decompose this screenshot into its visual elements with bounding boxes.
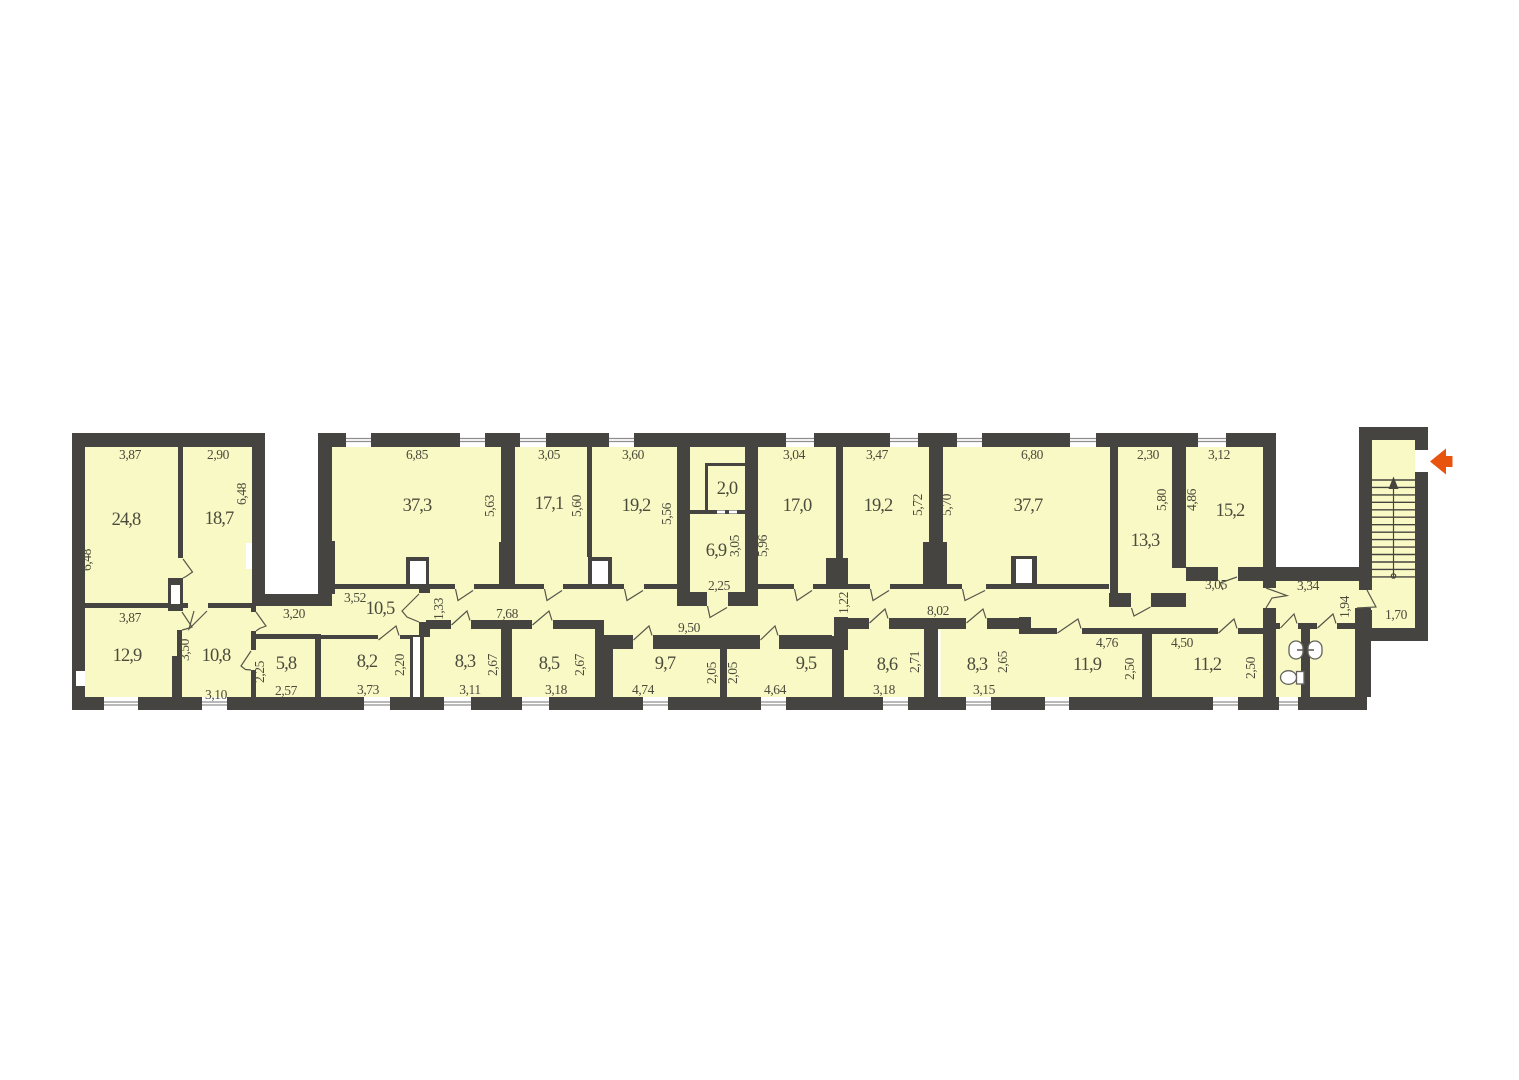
svg-text:2,25: 2,25	[252, 660, 267, 683]
svg-text:1,94: 1,94	[1337, 595, 1352, 618]
svg-text:2,05: 2,05	[704, 661, 719, 684]
svg-text:4,50: 4,50	[1171, 635, 1194, 650]
svg-text:19,2: 19,2	[864, 496, 893, 516]
svg-text:17,1: 17,1	[535, 494, 564, 514]
svg-text:5,96: 5,96	[755, 534, 770, 557]
svg-text:3,34: 3,34	[1297, 578, 1320, 593]
svg-text:6,85: 6,85	[406, 447, 429, 462]
svg-text:3,04: 3,04	[783, 447, 806, 462]
svg-text:7,68: 7,68	[496, 606, 519, 621]
svg-text:5,56: 5,56	[659, 502, 674, 525]
svg-text:11,9: 11,9	[1073, 655, 1102, 675]
svg-text:3,05: 3,05	[1205, 577, 1228, 592]
svg-text:9,5: 9,5	[796, 654, 817, 674]
svg-text:5,80: 5,80	[1154, 488, 1169, 511]
svg-text:3,87: 3,87	[119, 447, 142, 462]
svg-text:4,74: 4,74	[632, 682, 655, 697]
svg-text:3,50: 3,50	[177, 638, 192, 661]
svg-text:3,73: 3,73	[357, 682, 380, 697]
svg-text:1,22: 1,22	[836, 592, 851, 614]
svg-text:8,3: 8,3	[455, 652, 476, 672]
svg-text:1,70: 1,70	[1385, 607, 1408, 622]
svg-text:5,63: 5,63	[482, 494, 497, 517]
svg-text:2,67: 2,67	[572, 653, 587, 676]
svg-text:2,50: 2,50	[1243, 656, 1258, 679]
svg-text:3,10: 3,10	[205, 687, 228, 702]
svg-text:3,05: 3,05	[727, 534, 742, 557]
svg-text:2,0: 2,0	[717, 479, 738, 499]
svg-text:9,50: 9,50	[678, 620, 701, 635]
svg-text:6,48: 6,48	[79, 548, 94, 571]
svg-text:19,2: 19,2	[622, 496, 651, 516]
svg-text:3,60: 3,60	[622, 447, 645, 462]
svg-text:3,05: 3,05	[538, 447, 561, 462]
svg-text:2,57: 2,57	[275, 683, 298, 698]
svg-text:12,9: 12,9	[113, 646, 142, 666]
svg-text:6,80: 6,80	[1021, 447, 1044, 462]
svg-text:15,2: 15,2	[1216, 501, 1245, 521]
svg-text:4,64: 4,64	[764, 682, 787, 697]
svg-text:3,87: 3,87	[119, 610, 142, 625]
svg-text:37,3: 37,3	[403, 496, 432, 516]
svg-text:3,18: 3,18	[545, 682, 568, 697]
svg-text:4,76: 4,76	[1096, 635, 1119, 650]
svg-text:2,30: 2,30	[1137, 447, 1160, 462]
svg-text:3,15: 3,15	[973, 682, 996, 697]
svg-text:5,72: 5,72	[910, 494, 925, 516]
svg-text:10,5: 10,5	[366, 599, 395, 619]
svg-text:24,8: 24,8	[112, 510, 141, 530]
svg-text:2,65: 2,65	[995, 650, 1010, 673]
svg-text:6,48: 6,48	[234, 482, 249, 505]
svg-text:3,20: 3,20	[283, 606, 306, 621]
svg-text:2,90: 2,90	[207, 447, 230, 462]
svg-text:3,11: 3,11	[459, 682, 481, 697]
svg-text:8,02: 8,02	[927, 603, 949, 618]
svg-text:3,18: 3,18	[873, 682, 896, 697]
svg-text:17,0: 17,0	[783, 496, 812, 516]
svg-text:1,33: 1,33	[431, 597, 446, 620]
svg-text:2,20: 2,20	[392, 653, 407, 676]
svg-text:3,12: 3,12	[1208, 447, 1230, 462]
svg-text:9,7: 9,7	[655, 654, 676, 674]
svg-text:5,8: 5,8	[276, 654, 297, 674]
svg-text:2,71: 2,71	[907, 651, 922, 673]
svg-text:8,3: 8,3	[967, 655, 988, 675]
svg-text:2,67: 2,67	[485, 653, 500, 676]
svg-text:2,05: 2,05	[725, 661, 740, 684]
svg-text:8,6: 8,6	[877, 655, 898, 675]
svg-text:10,8: 10,8	[202, 646, 231, 666]
svg-text:8,5: 8,5	[539, 654, 560, 674]
svg-text:3,52: 3,52	[344, 590, 366, 605]
svg-text:8,2: 8,2	[357, 652, 378, 672]
svg-text:6,9: 6,9	[706, 541, 727, 561]
svg-text:3,47: 3,47	[866, 447, 889, 462]
svg-text:11,2: 11,2	[1193, 655, 1222, 675]
svg-text:5,60: 5,60	[569, 494, 584, 517]
svg-text:37,7: 37,7	[1014, 496, 1043, 516]
svg-text:2,25: 2,25	[708, 578, 731, 593]
svg-text:13,3: 13,3	[1131, 531, 1160, 551]
svg-text:18,7: 18,7	[205, 509, 234, 529]
svg-text:2,50: 2,50	[1122, 657, 1137, 680]
svg-text:5,70: 5,70	[939, 493, 954, 516]
svg-text:4,86: 4,86	[1184, 488, 1199, 511]
